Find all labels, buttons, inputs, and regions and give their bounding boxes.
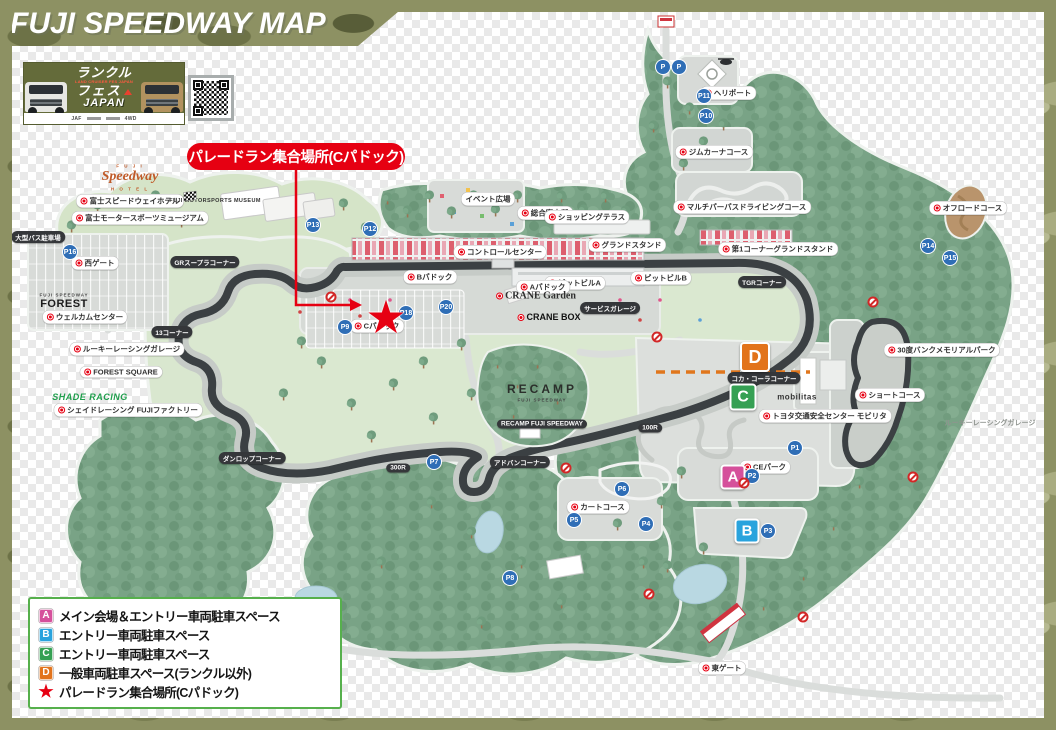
- land-cruiser-white: [25, 82, 67, 112]
- legend-label-a: メイン会場＆エントリー車両駐車スペース: [59, 606, 280, 625]
- checkered-flag-icon: [184, 191, 196, 200]
- page-title: FUJI SPEEDWAY MAP: [12, 12, 412, 42]
- sponsor-jaf: JAF: [71, 116, 81, 122]
- land-cruiser-tan: [141, 82, 183, 112]
- banner-line1: ランクル: [68, 66, 140, 79]
- legend-chip-b: B: [39, 628, 53, 642]
- legend-box: A メイン会場＆エントリー車両駐車スペース B エントリー車両駐車スペース C …: [28, 597, 342, 709]
- poster-frame: F U J ISpeedwayH O T E L富士スピードウェイホテルFUJI…: [0, 0, 1056, 730]
- fuji-mountain-icon: [124, 89, 132, 95]
- qr-code: [188, 75, 234, 121]
- banner-line2: フェス: [68, 84, 140, 97]
- legend-row-c: C エントリー車両駐車スペース: [39, 644, 331, 663]
- legend-label-star: パレードラン集合場所(Cパドック): [59, 682, 238, 701]
- event-banner: ランクル LAND CRUISER FES JAPAN フェス JAPAN JA…: [24, 63, 184, 124]
- legend-row-a: A メイン会場＆エントリー車両駐車スペース: [39, 606, 331, 625]
- legend-label-c: エントリー車両駐車スペース: [59, 644, 210, 663]
- sponsor-4wd: 4WD: [125, 116, 137, 122]
- legend-chip-d: D: [39, 666, 53, 680]
- banner-line3: JAPAN: [68, 97, 140, 109]
- legend-row-d: D 一般車両駐車スペース(ランクル以外): [39, 663, 331, 682]
- legend-star-icon: ★: [39, 685, 53, 699]
- sponsor-bar: [87, 117, 101, 120]
- legend-label-d: 一般車両駐車スペース(ランクル以外): [59, 663, 251, 682]
- banner-logo: ランクル LAND CRUISER FES JAPAN フェス JAPAN: [68, 66, 140, 109]
- legend-chip-c: C: [39, 647, 53, 661]
- sponsor-bar: [106, 117, 120, 120]
- legend-chip-a: A: [39, 609, 53, 623]
- legend-row-star: ★ パレードラン集合場所(Cパドック): [39, 682, 331, 701]
- map-canvas: F U J ISpeedwayH O T E L富士スピードウェイホテルFUJI…: [12, 12, 1044, 718]
- legend-row-b: B エントリー車両駐車スペース: [39, 625, 331, 644]
- legend-label-b: エントリー車両駐車スペース: [59, 625, 210, 644]
- parade-run-callout: パレードラン集合場所(Cパドック): [187, 143, 405, 170]
- banner-sponsors: JAF 4WD: [24, 113, 184, 124]
- header-band: FUJI SPEEDWAY MAP: [12, 12, 412, 46]
